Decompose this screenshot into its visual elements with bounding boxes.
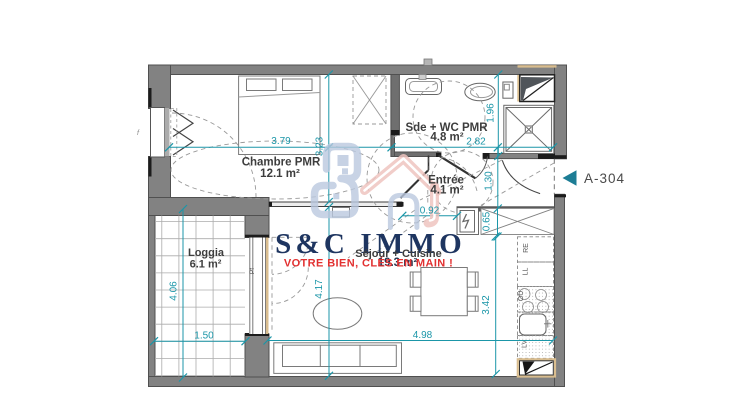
svg-text:0.92: 0.92	[420, 206, 440, 217]
svg-text:LL: LL	[523, 268, 530, 276]
svg-text:1.30: 1.30	[484, 171, 495, 191]
svg-text:4.98: 4.98	[413, 330, 433, 341]
svg-text:0.65: 0.65	[482, 211, 493, 231]
svg-text:Chambre PMR: Chambre PMR	[242, 157, 321, 169]
svg-text:4.17: 4.17	[314, 279, 325, 299]
svg-text:A-304: A-304	[584, 171, 625, 186]
svg-text:3.23: 3.23	[315, 136, 326, 156]
svg-text:Loggia: Loggia	[188, 247, 225, 259]
svg-text:6.1 m²: 6.1 m²	[190, 259, 222, 271]
svg-text:4.1 m²: 4.1 m²	[430, 185, 463, 197]
svg-text:2.82: 2.82	[466, 137, 486, 148]
svg-text:4.8 m²: 4.8 m²	[430, 132, 463, 144]
svg-text:Séjour + Cuisine: Séjour + Cuisine	[355, 248, 442, 260]
svg-text:3.42: 3.42	[481, 295, 492, 315]
svg-text:1.50: 1.50	[194, 331, 214, 342]
svg-text:Pf: Pf	[249, 268, 256, 274]
svg-text:1.96: 1.96	[486, 103, 497, 123]
svg-text:RE: RE	[523, 243, 530, 253]
svg-text:12.1 m²: 12.1 m²	[260, 168, 300, 180]
svg-text:OU: OU	[518, 291, 525, 302]
svg-text:3.79: 3.79	[271, 136, 291, 147]
svg-text:4.06: 4.06	[169, 281, 180, 301]
